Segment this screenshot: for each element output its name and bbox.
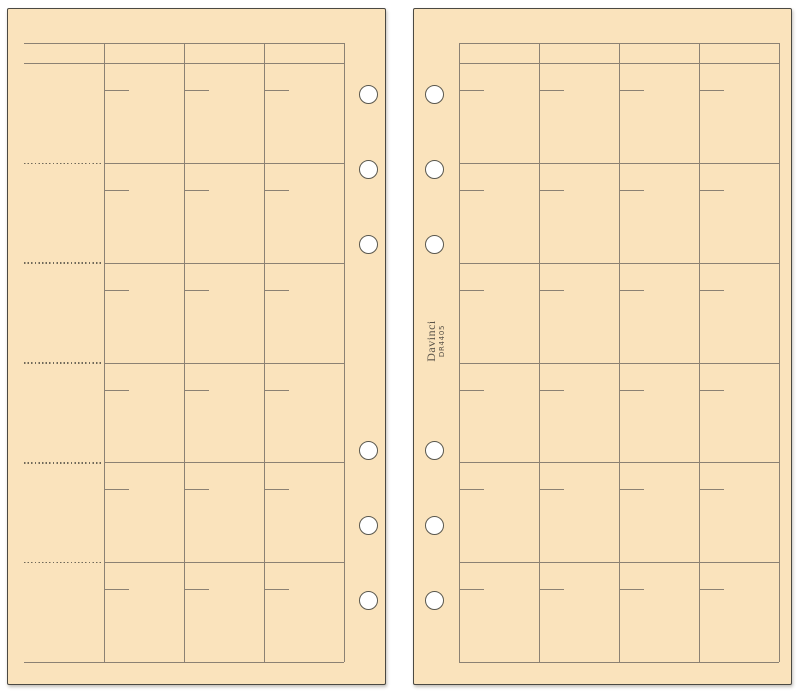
date-tick [459, 589, 484, 590]
week-label-dotted-separator [24, 362, 101, 363]
date-tick [539, 290, 564, 291]
date-tick [184, 90, 209, 91]
date-tick [699, 290, 724, 291]
binder-hole-icon [359, 160, 378, 179]
week-label-dotted-separator [24, 462, 101, 463]
date-tick [184, 390, 209, 391]
date-tick [104, 290, 129, 291]
date-tick [459, 489, 484, 490]
date-tick [459, 290, 484, 291]
organizer-refill-spread: Davinci DR4405 [0, 0, 800, 693]
date-tick [619, 390, 644, 391]
brand-logo-text: Davinci [425, 320, 437, 362]
grid-bottom-rule [24, 662, 344, 663]
binder-hole-icon [359, 516, 378, 535]
row-separator [104, 163, 344, 164]
date-tick [699, 90, 724, 91]
binder-hole-icon [425, 516, 444, 535]
right-page: Davinci DR4405 [413, 8, 792, 685]
column-divider [104, 43, 105, 662]
row-separator [459, 462, 779, 463]
brand-mark: Davinci DR4405 [415, 321, 455, 361]
date-tick [264, 290, 289, 291]
column-divider [779, 43, 780, 662]
binder-hole-icon [425, 160, 444, 179]
binder-hole-icon [359, 441, 378, 460]
date-tick [104, 489, 129, 490]
week-label-dotted-separator [24, 262, 101, 263]
column-divider [184, 43, 185, 662]
binder-hole-icon [359, 85, 378, 104]
date-tick [539, 190, 564, 191]
date-tick [264, 489, 289, 490]
date-tick [104, 390, 129, 391]
date-tick [619, 589, 644, 590]
date-tick [539, 489, 564, 490]
column-divider [264, 43, 265, 662]
week-label-dotted-separator [24, 163, 101, 164]
binder-hole-icon [425, 441, 444, 460]
date-tick [699, 489, 724, 490]
date-tick [104, 589, 129, 590]
column-divider [459, 43, 460, 662]
date-tick [184, 489, 209, 490]
date-tick [699, 190, 724, 191]
date-tick [539, 90, 564, 91]
date-tick [184, 589, 209, 590]
week-label-dotted-separator [24, 562, 101, 563]
date-tick [459, 190, 484, 191]
row-separator [459, 363, 779, 364]
binder-hole-icon [359, 591, 378, 610]
date-tick [619, 90, 644, 91]
row-separator [104, 363, 344, 364]
date-tick [619, 489, 644, 490]
date-tick [459, 390, 484, 391]
row-separator [459, 163, 779, 164]
grid-bottom-rule [459, 662, 779, 663]
date-tick [264, 390, 289, 391]
date-tick [619, 190, 644, 191]
binder-hole-icon [425, 591, 444, 610]
row-separator [459, 263, 779, 264]
binder-hole-icon [425, 235, 444, 254]
row-separator [104, 562, 344, 563]
left-page [7, 8, 386, 685]
date-tick [539, 589, 564, 590]
binder-hole-icon [425, 85, 444, 104]
date-tick [264, 190, 289, 191]
column-divider [344, 43, 345, 662]
column-divider [619, 43, 620, 662]
row-separator [459, 562, 779, 563]
date-tick [104, 190, 129, 191]
date-tick [184, 290, 209, 291]
binder-hole-icon [359, 235, 378, 254]
column-divider [539, 43, 540, 662]
date-tick [459, 90, 484, 91]
product-model-number: DR4405 [438, 325, 446, 357]
date-tick [699, 589, 724, 590]
date-tick [264, 90, 289, 91]
date-tick [104, 90, 129, 91]
row-separator [104, 462, 344, 463]
date-tick [539, 390, 564, 391]
date-tick [619, 290, 644, 291]
date-tick [184, 190, 209, 191]
date-tick [264, 589, 289, 590]
row-separator [104, 263, 344, 264]
column-divider [699, 43, 700, 662]
date-tick [699, 390, 724, 391]
